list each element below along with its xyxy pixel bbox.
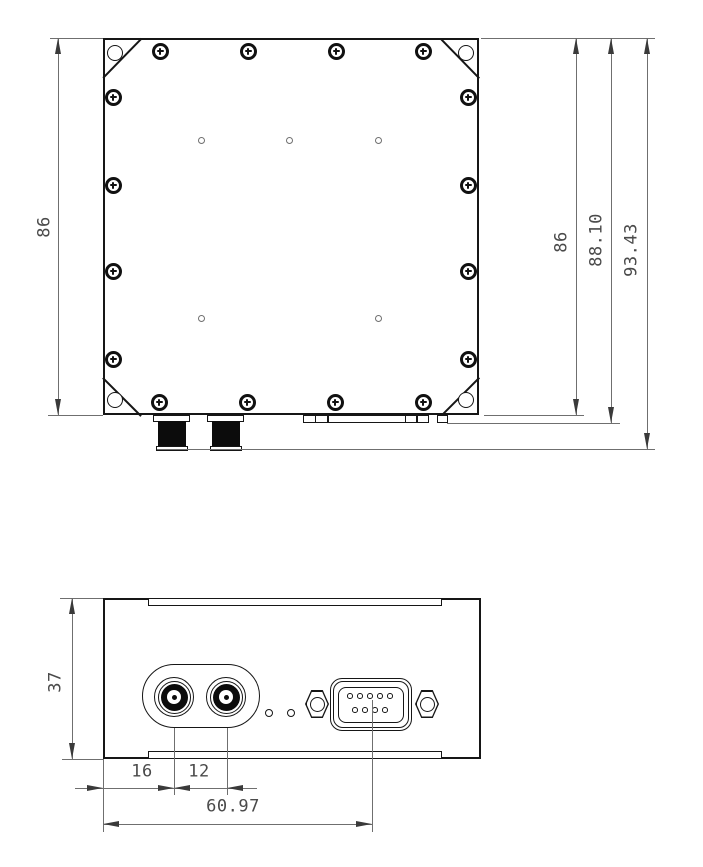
db9-pin bbox=[352, 707, 358, 713]
dim-arrow-left bbox=[103, 821, 119, 827]
db9-jackscrew-left-hole bbox=[310, 697, 325, 712]
indicator-hole bbox=[265, 709, 273, 717]
db9-jackscrew-right-hole bbox=[420, 697, 435, 712]
extension-line bbox=[60, 598, 103, 599]
dim-arrow-down bbox=[69, 743, 75, 759]
db9-pin bbox=[367, 693, 373, 699]
dimension-line bbox=[72, 598, 73, 759]
db9-pin bbox=[362, 707, 368, 713]
panel-lip-top bbox=[148, 598, 442, 606]
panel-lip-bottom bbox=[148, 751, 442, 759]
db9-pin bbox=[347, 693, 353, 699]
dim-arrow-left bbox=[227, 785, 243, 791]
dim-label-rf1-offset: 16 bbox=[131, 764, 152, 781]
db9-centerline bbox=[372, 700, 373, 832]
dim-arrow-right bbox=[356, 821, 372, 827]
rf-connector-2-pin bbox=[224, 695, 229, 700]
rf-connector-1-pin bbox=[172, 695, 177, 700]
dim-arrow-up bbox=[69, 598, 75, 614]
dim-arrow-right bbox=[87, 785, 103, 791]
dim-arrow-right bbox=[158, 785, 174, 791]
dim-label-rf-spacing: 12 bbox=[188, 764, 209, 781]
dim-label-panel-height: 37 bbox=[48, 671, 65, 692]
db9-pin bbox=[372, 707, 378, 713]
indicator-hole bbox=[287, 709, 295, 717]
db9-pin bbox=[387, 693, 393, 699]
dimension-line bbox=[103, 824, 372, 825]
db9-pin bbox=[382, 707, 388, 713]
technical-drawing: 86 86 88.10 93.43 bbox=[0, 0, 703, 867]
front-view: 37 16 12 60.97 bbox=[0, 0, 703, 867]
dim-label-db9-offset: 60.97 bbox=[206, 799, 260, 816]
dim-arrow-left bbox=[174, 785, 190, 791]
db9-pin bbox=[357, 693, 363, 699]
db9-pin bbox=[377, 693, 383, 699]
